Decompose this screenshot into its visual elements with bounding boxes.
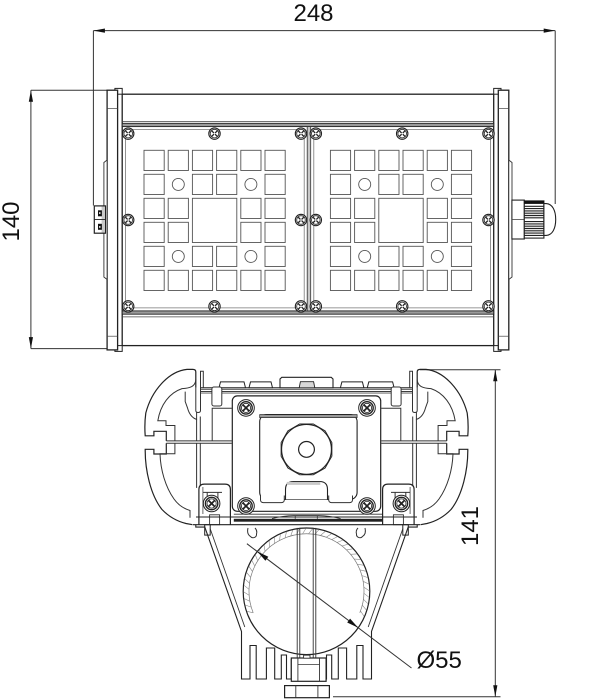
svg-text:Ø55: Ø55 xyxy=(417,647,462,674)
svg-text:248: 248 xyxy=(293,0,333,27)
svg-text:141: 141 xyxy=(457,506,484,546)
svg-text:140: 140 xyxy=(0,201,25,241)
